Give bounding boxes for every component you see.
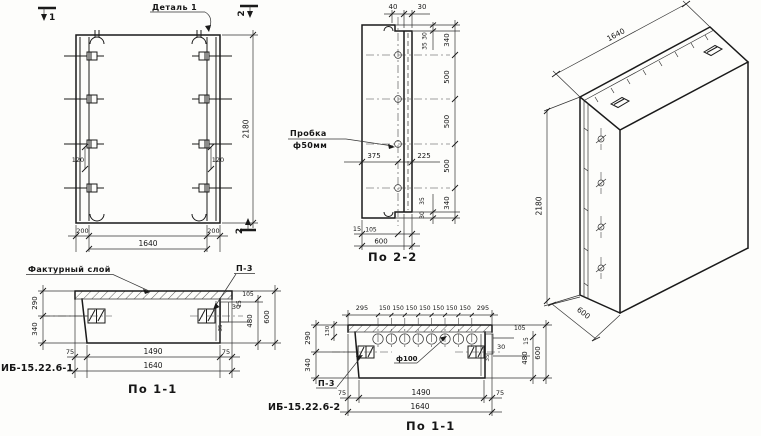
dim-295-right: 295 [477, 304, 489, 312]
plan-view-2: 295 150 150 150 150 150 150 150 295 ф100… [268, 304, 552, 433]
dim-340: 340 [304, 358, 312, 371]
iso-dim-2180: 2180 [535, 196, 544, 215]
hole-callout: ф100 [396, 355, 418, 363]
plan-view-1: Фактурный слой П-3 290 340 105 15 30 35 … [1, 264, 281, 396]
dim-600: 600 [374, 238, 387, 246]
detail-callout: Деталь 1 [152, 3, 197, 12]
dim-375: 375 [367, 152, 380, 160]
dim-35: 35 [218, 324, 224, 331]
dim-225: 225 [417, 152, 430, 160]
hook-offset-lines [85, 147, 211, 169]
dim-150: 150 [446, 305, 458, 312]
edge-strip-hatch [221, 302, 229, 322]
dim-290: 290 [31, 296, 39, 309]
dim-35-right-top: 35 [422, 42, 429, 50]
plan1-title: По 1-1 [128, 382, 178, 396]
dim-1640: 1640 [410, 402, 429, 411]
dim-35: 35 [485, 354, 491, 361]
dim-30: 30 [497, 343, 505, 351]
isometric-view: 1640 2180 600 [535, 1, 749, 341]
section-mark-arrowheads [41, 11, 253, 225]
section-2-2-view: 40 30 30 35 340 500 500 500 340 35 30 37… [288, 3, 460, 264]
section-mark-1: 1 [49, 13, 55, 23]
section-mark-2-top: 2 [237, 10, 247, 16]
plug-callout-line1: Пробка [290, 128, 327, 138]
anchor-hooks-left [64, 52, 104, 192]
dim-150: 150 [406, 305, 418, 312]
facing-layer-hatch [348, 325, 492, 332]
detail-leader [150, 12, 211, 30]
panel-working-drawing: 120 120 200 1640 200 2180 1 2 2 Деталь 1… [0, 0, 761, 436]
plan1-mark: ИБ-15.22.6-1 [1, 363, 73, 374]
dim-480: 480 [521, 351, 529, 364]
dim-75-right: 75 [222, 348, 230, 356]
dim-340-bottom: 340 [443, 196, 451, 209]
panel-outline [76, 35, 220, 223]
plan2-mark: ИБ-15.22.6-2 [268, 402, 340, 413]
section-mark-strokes [38, 6, 258, 230]
iso-height-extensions [544, 97, 580, 306]
hook-offset-ticks [82, 144, 214, 172]
dim-130: 130 [325, 325, 331, 336]
dim-500-2: 500 [443, 115, 451, 128]
iso-width-dim-line [556, 4, 686, 74]
dim-35-right-bottom: 35 [419, 197, 426, 205]
dim-150: 150 [392, 305, 404, 312]
dim-15: 15 [353, 225, 361, 233]
iso-dim-1640: 1640 [605, 26, 626, 43]
dim-30-top: 30 [418, 3, 427, 11]
iso-facing-edges [584, 30, 714, 299]
dim-1640: 1640 [143, 361, 162, 370]
dim-hook-right: 120 [212, 156, 224, 164]
dim-340-top: 340 [443, 33, 451, 46]
iso-rebate-ticks [584, 35, 708, 286]
section-mark-2-bottom: 2 [235, 228, 245, 234]
section-outline [362, 25, 412, 218]
facing-callout-leader [26, 275, 149, 292]
detail-leader-arrow [205, 25, 211, 32]
dim-340: 340 [31, 322, 39, 335]
lifting-loop-top [90, 30, 206, 44]
dim-200-left: 200 [76, 227, 88, 235]
plan2-outline [348, 325, 492, 378]
side-rib-lines [80, 37, 216, 221]
dim-30-right-top: 30 [422, 32, 429, 40]
iso-dim-600: 600 [575, 305, 592, 321]
dim-1490: 1490 [411, 388, 430, 397]
dim-105: 105 [365, 227, 377, 234]
dimension-ticks [73, 32, 256, 252]
plug-callout-arrow [388, 144, 395, 149]
dim-150: 150 [433, 305, 445, 312]
dim-480: 480 [246, 314, 254, 327]
dim-290: 290 [304, 331, 312, 344]
dim-150: 150 [379, 305, 391, 312]
iso-plug-slashes [596, 135, 606, 272]
iso-panel-edges [580, 27, 748, 313]
hole-callout-arrow [440, 336, 447, 342]
dim-1490: 1490 [143, 347, 162, 356]
dim-15: 15 [523, 337, 530, 345]
dim-500-1: 500 [443, 70, 451, 83]
dim-105: 105 [514, 325, 526, 332]
drawing-sheet: 120 120 200 1640 200 2180 1 2 2 Деталь 1… [0, 0, 761, 436]
dim-30-right-bottom: 30 [419, 211, 426, 219]
dim-40: 40 [389, 3, 398, 11]
dim-hook-left: 120 [72, 156, 84, 164]
dim-105: 105 [242, 291, 254, 298]
dim-1640: 1640 [138, 239, 157, 248]
dim-height-2180: 2180 [242, 119, 251, 138]
dim-75-right: 75 [496, 389, 504, 397]
dim-600: 600 [263, 310, 271, 323]
anchor-callout: П-3 [236, 264, 253, 273]
dim-150: 150 [419, 305, 431, 312]
iso-width-extensions [553, 1, 710, 97]
facing-layer-hatch [75, 291, 232, 299]
plug-callout-line2: ф50мм [293, 141, 327, 150]
iso-depth-dim-line [552, 304, 596, 339]
dim-500-3: 500 [443, 159, 451, 172]
dim-75-left: 75 [338, 389, 346, 397]
dim-150: 150 [459, 305, 471, 312]
dim-30: 30 [232, 303, 240, 311]
anchor-callout: П-3 [318, 379, 335, 388]
plan2-title: По 1-1 [406, 419, 456, 433]
dim-200-right: 200 [207, 227, 219, 235]
dim-75-left: 75 [66, 348, 74, 356]
section-2-2-title: По 2-2 [368, 250, 418, 264]
anchor-hooks-right [192, 52, 232, 192]
facing-callout: Фактурный слой [28, 265, 111, 274]
lifting-loop-bottom [90, 214, 206, 221]
dim-600: 600 [534, 346, 542, 359]
front-view: 120 120 200 1640 200 2180 1 2 2 Деталь 1 [38, 3, 258, 252]
section-mark-arrow-lines [44, 6, 250, 230]
dim-295-left: 295 [356, 304, 368, 312]
